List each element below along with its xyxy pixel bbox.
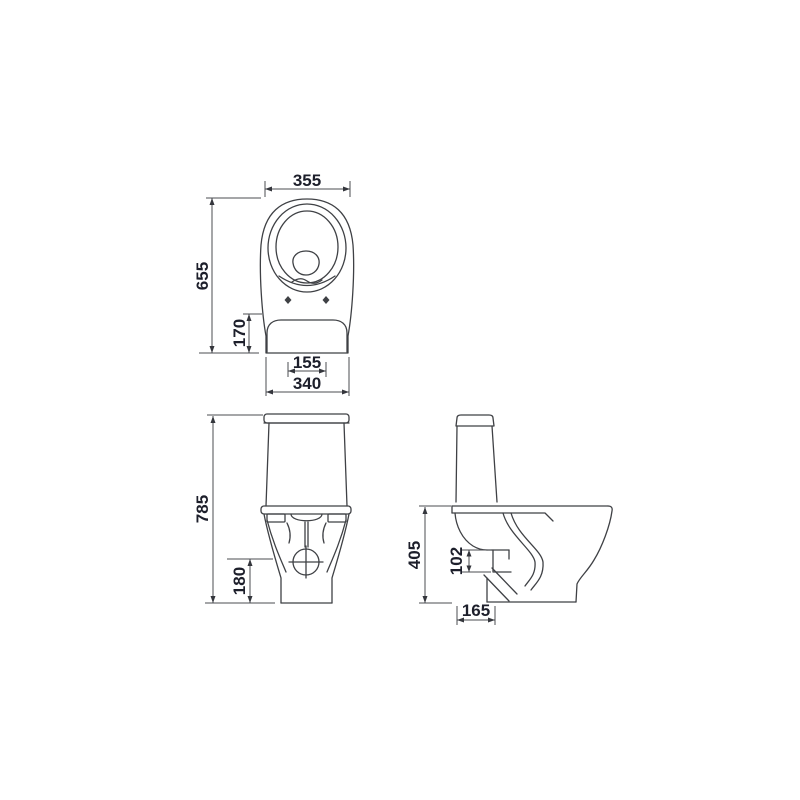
toilet-dimension-drawing: 355 655 170 155 — [0, 0, 800, 800]
dim-label-tank-width: 340 — [293, 374, 321, 393]
tank-lid-side — [456, 415, 494, 426]
bowl-arch — [291, 514, 322, 521]
dim-arrow-down — [248, 596, 253, 603]
bowl-spur-left — [287, 523, 290, 543]
side-view — [452, 415, 612, 602]
seat-plate — [261, 506, 351, 514]
dim-total-depth: 655 — [193, 198, 261, 353]
side-view-dimensions: 405 102 165 — [405, 506, 495, 625]
outlet-step — [493, 550, 511, 572]
dim-arrow-down — [211, 596, 216, 603]
top-view-tank-lid-outline — [267, 320, 347, 352]
dim-outlet-height: 102 — [447, 547, 491, 575]
dim-arrow-down — [423, 596, 428, 603]
rim-bottom-line — [452, 513, 553, 521]
dim-arrow-right — [342, 390, 349, 395]
dim-extension-line — [462, 550, 491, 572]
dim-arrow-up — [248, 559, 253, 566]
pedestal-outer-right — [332, 514, 349, 603]
tank-lid — [264, 414, 349, 423]
bowl-stem — [305, 522, 308, 547]
hinge-fixing-left — [267, 514, 285, 522]
outlet-pipe-diagonals — [484, 568, 517, 601]
dim-arrow-up — [467, 550, 472, 557]
dim-tank-depth: 170 — [230, 314, 262, 353]
dim-label-outlet-height: 102 — [447, 547, 466, 575]
dim-label-total-depth: 655 — [193, 262, 212, 290]
top-view-dimensions: 355 655 170 155 — [193, 171, 350, 396]
dim-arrow-up — [210, 198, 215, 205]
hinge-fixing-right — [328, 514, 346, 522]
water-spot — [293, 251, 319, 275]
dim-arrow-up — [423, 507, 428, 514]
dim-drain-center-height: 180 — [227, 559, 273, 603]
dim-seat-width: 355 — [265, 171, 350, 197]
dim-label-seat-hole-spacing: 155 — [293, 353, 321, 372]
bowl-front-profile — [576, 506, 612, 602]
drain-crosshair — [289, 546, 323, 578]
tank-body — [266, 423, 347, 506]
tank-body-side — [456, 426, 497, 502]
dim-arrow-left — [266, 390, 273, 395]
front-view — [261, 414, 351, 603]
seat-hinge-mark-right — [323, 296, 330, 304]
technical-drawing-page: 355 655 170 155 — [0, 0, 800, 800]
dim-label-bowl-height: 405 — [405, 541, 424, 569]
seat-ring-outer — [268, 204, 346, 292]
dim-label-seat-width: 355 — [293, 171, 321, 190]
top-view-outline — [260, 199, 353, 353]
bowl-spur-right — [323, 523, 326, 543]
dim-arrow-down — [210, 346, 215, 353]
front-view-dimensions: 785 180 — [193, 415, 275, 603]
dim-label-outlet-offset: 165 — [462, 601, 490, 620]
dim-bowl-height: 405 — [405, 506, 452, 603]
seat-hinge-mark-left — [285, 296, 292, 304]
dim-arrow-left — [265, 187, 272, 192]
seat-ring-inner — [276, 211, 338, 283]
dim-outlet-offset: 165 — [457, 601, 495, 625]
top-view — [260, 199, 353, 353]
dim-label-total-height: 785 — [193, 495, 212, 523]
dim-arrow-right — [343, 187, 350, 192]
trapway-curve-outer — [511, 513, 543, 590]
dim-arrow-up — [211, 416, 216, 423]
dim-label-tank-depth: 170 — [230, 319, 249, 347]
back-profile-curve — [455, 513, 487, 550]
dim-arrow-down — [467, 566, 472, 573]
dim-label-drain-center-height: 180 — [230, 567, 249, 595]
